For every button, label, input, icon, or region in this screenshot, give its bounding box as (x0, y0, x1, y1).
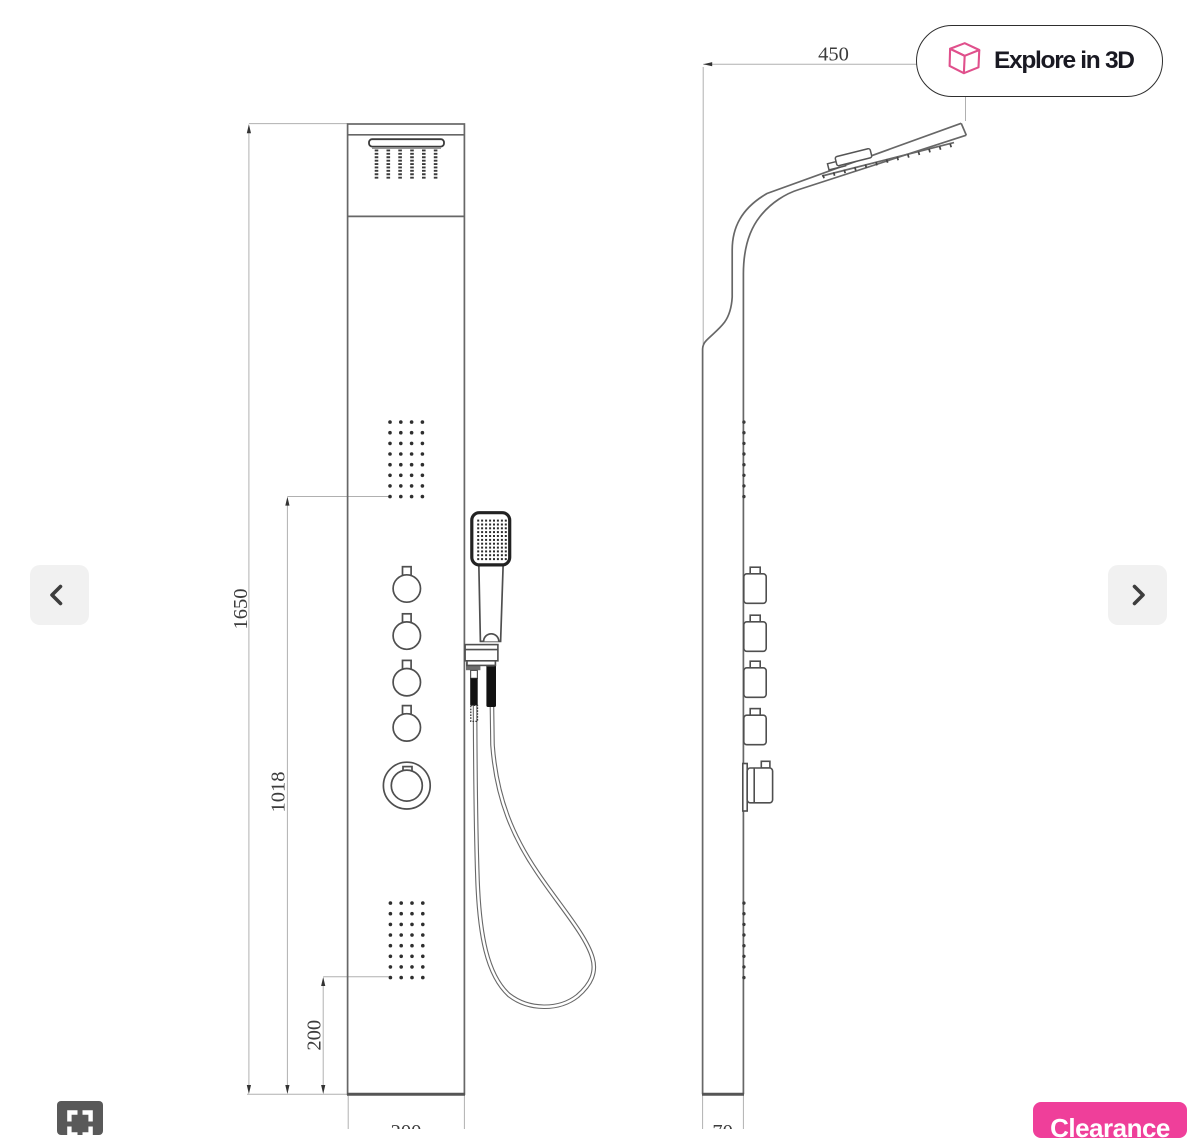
svg-text:450: 450 (818, 44, 849, 66)
svg-text:1018: 1018 (268, 772, 290, 813)
svg-text:200: 200 (304, 1020, 326, 1051)
svg-text:1650: 1650 (230, 589, 252, 630)
svg-text:70: 70 (712, 1121, 733, 1129)
svg-text:200: 200 (391, 1121, 422, 1129)
